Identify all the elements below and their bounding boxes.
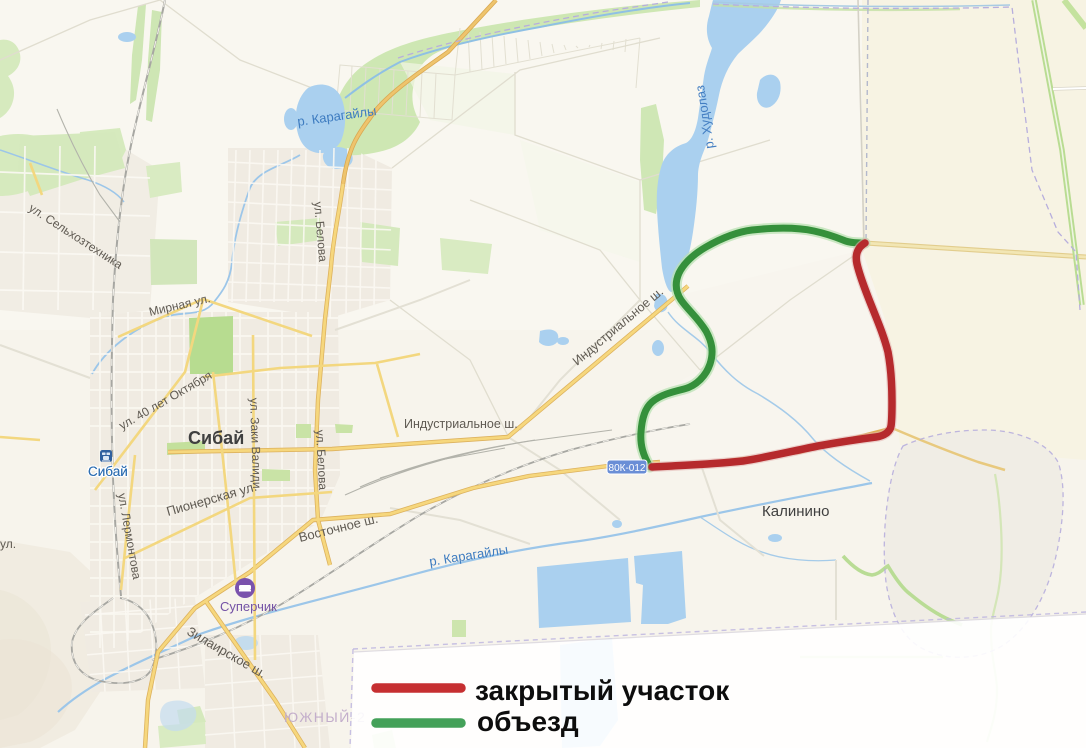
svg-text:ул.: ул. xyxy=(0,537,16,551)
svg-text:объезд: объезд xyxy=(477,706,579,737)
svg-text:Сибай: Сибай xyxy=(88,464,128,479)
svg-text:Суперчик: Суперчик xyxy=(220,599,277,614)
svg-text:Калинино: Калинино xyxy=(762,503,830,520)
svg-text:Сибай: Сибай xyxy=(188,428,244,448)
svg-text:закрытый участок: закрытый участок xyxy=(475,675,730,706)
svg-text:80К-012: 80К-012 xyxy=(609,463,646,474)
svg-text:Индустриальное ш.: Индустриальное ш. xyxy=(404,417,518,431)
